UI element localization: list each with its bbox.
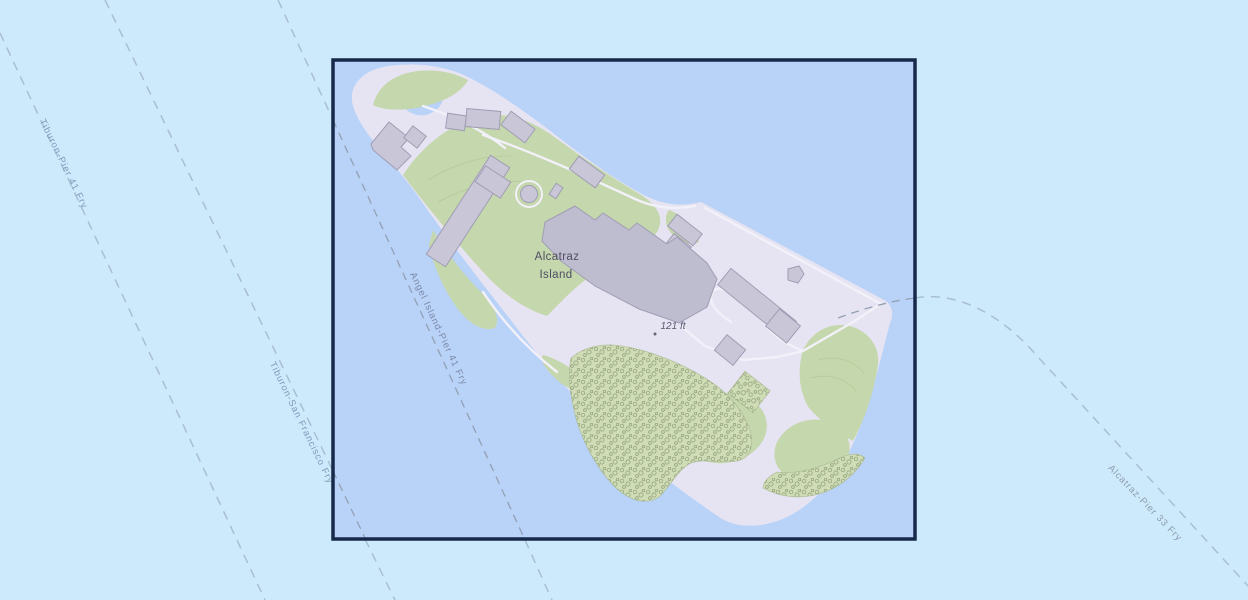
elevation-point	[654, 333, 657, 336]
elevation-label: 121 ft	[660, 321, 686, 332]
island-name-line2: Island	[539, 269, 572, 281]
selection-extent-content: Alcatraz Island 121 ft Angel Island-Pier…	[333, 60, 915, 540]
map-canvas[interactable]: Tiburon-Pier 41 Fry Tiburon-San Francisc…	[0, 0, 1248, 600]
island-name-line1: Alcatraz	[535, 251, 580, 263]
building	[465, 109, 500, 130]
water-tower	[521, 186, 538, 203]
map-svg: Tiburon-Pier 41 Fry Tiburon-San Francisc…	[0, 0, 1248, 600]
building	[446, 113, 467, 130]
